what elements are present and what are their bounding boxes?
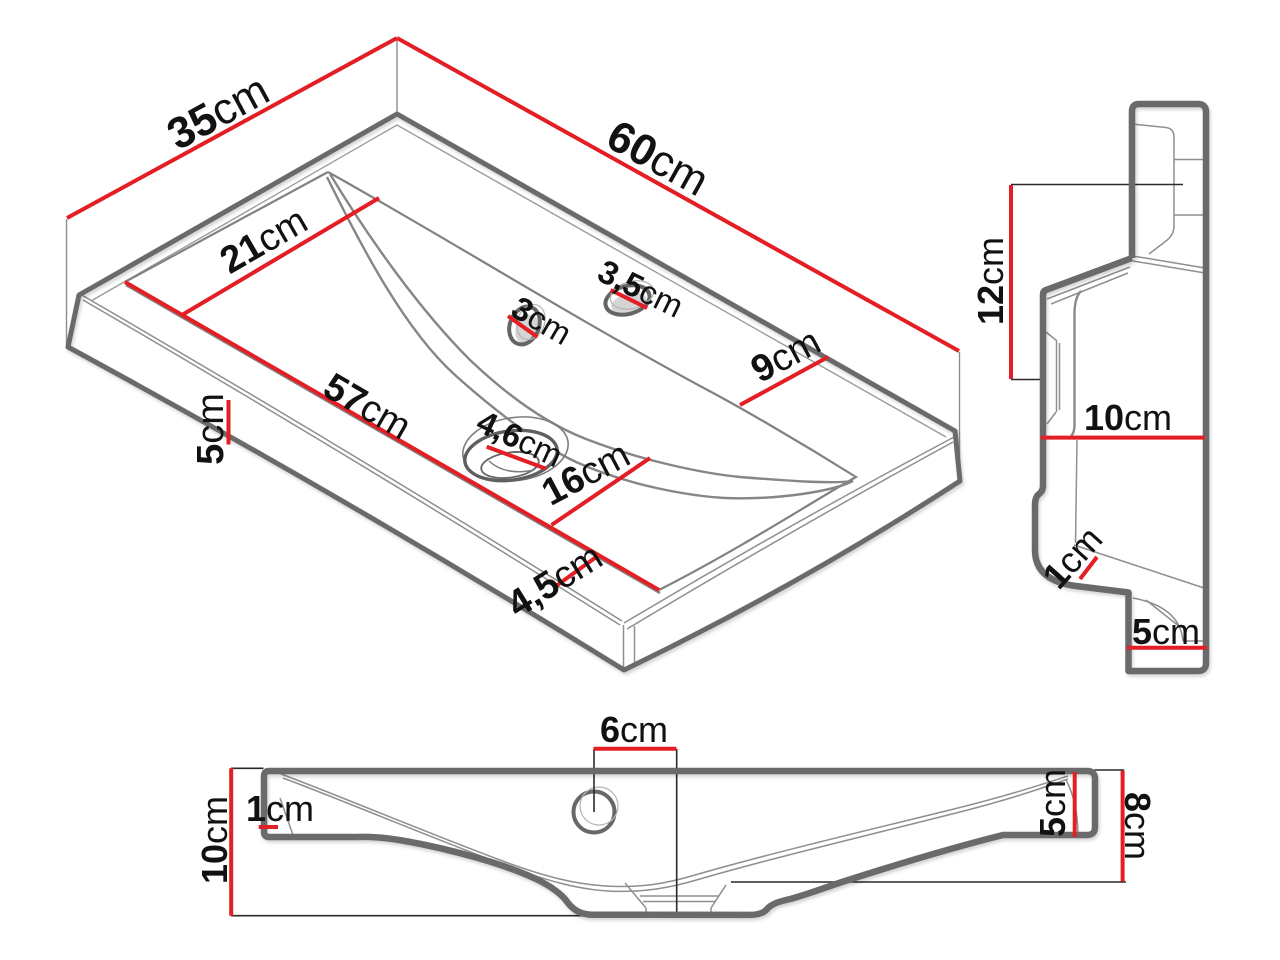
svg-text:6cm: 6cm [600,709,668,750]
svg-text:60cm: 60cm [599,110,717,205]
svg-text:57cm: 57cm [316,366,417,449]
svg-text:35cm: 35cm [159,65,277,160]
svg-text:8cm: 8cm [1118,792,1159,860]
svg-text:3,5cm: 3,5cm [593,252,690,325]
svg-text:10cm: 10cm [194,796,235,884]
svg-text:4,5cm: 4,5cm [500,536,610,626]
svg-text:5cm: 5cm [190,393,232,465]
svg-text:1cm: 1cm [246,788,314,829]
svg-text:5cm: 5cm [1032,769,1073,837]
svg-text:5cm: 5cm [1132,611,1200,652]
svg-text:10cm: 10cm [1084,397,1172,438]
svg-text:12cm: 12cm [970,237,1011,325]
svg-text:1cm: 1cm [1034,518,1110,596]
